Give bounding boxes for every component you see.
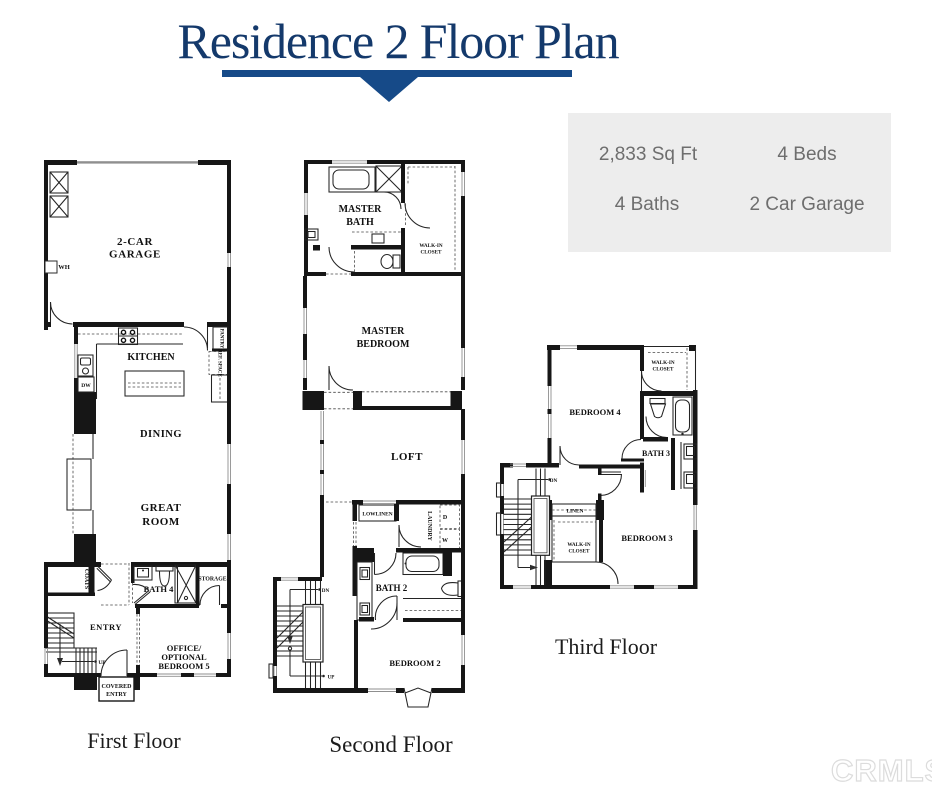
svg-text:COVERED: COVERED (101, 684, 132, 690)
svg-text:GARAGE: GARAGE (109, 249, 161, 261)
svg-text:GREAT: GREAT (141, 502, 182, 514)
svg-text:ENTRY: ENTRY (90, 622, 122, 632)
svg-text:PANTRY: PANTRY (219, 329, 224, 349)
svg-text:UP: UP (98, 660, 106, 666)
svg-text:COATS: COATS (83, 569, 89, 590)
svg-text:WH: WH (58, 264, 70, 271)
svg-text:BEDROOM 4: BEDROOM 4 (569, 407, 621, 417)
svg-text:BEDROOM 2: BEDROOM 2 (389, 658, 440, 668)
svg-text:LOWLINEN: LOWLINEN (362, 512, 392, 518)
svg-text:BATH: BATH (346, 217, 374, 228)
svg-text:DN: DN (550, 478, 558, 484)
svg-text:WALK-IN: WALK-IN (419, 243, 443, 249)
svg-text:REF. SPACE: REF. SPACE (217, 349, 222, 377)
svg-text:BATH 3: BATH 3 (642, 449, 670, 458)
svg-text:BATH 2: BATH 2 (376, 583, 408, 593)
svg-text:ENTRY: ENTRY (106, 692, 127, 698)
svg-text:DN: DN (322, 588, 330, 594)
svg-text:KITCHEN: KITCHEN (127, 352, 175, 363)
svg-text:MASTER: MASTER (362, 326, 406, 337)
svg-text:BEDROOM: BEDROOM (357, 339, 410, 350)
svg-text:WALK-IN: WALK-IN (567, 542, 591, 548)
svg-text:LOFT: LOFT (391, 451, 423, 463)
svg-text:ROOM: ROOM (142, 516, 180, 528)
svg-text:DW: DW (81, 383, 91, 389)
svg-text:LAUNDRY: LAUNDRY (426, 511, 432, 541)
svg-text:STORAGE: STORAGE (198, 577, 226, 583)
svg-text:CLOSET: CLOSET (652, 367, 674, 373)
svg-text:MASTER: MASTER (339, 204, 383, 215)
svg-text:DINING: DINING (140, 429, 182, 440)
svg-text:UP: UP (328, 675, 336, 681)
svg-text:WALK-IN: WALK-IN (651, 360, 675, 366)
svg-text:2-CAR: 2-CAR (117, 236, 153, 248)
svg-text:CLOSET: CLOSET (420, 250, 442, 256)
svg-text:BEDROOM 5: BEDROOM 5 (158, 661, 209, 671)
svg-text:W: W (442, 538, 448, 544)
svg-text:BEDROOM 3: BEDROOM 3 (621, 533, 672, 543)
svg-text:D: D (443, 515, 448, 521)
svg-text:LINEN: LINEN (566, 509, 583, 515)
svg-text:CLOSET: CLOSET (568, 549, 590, 555)
